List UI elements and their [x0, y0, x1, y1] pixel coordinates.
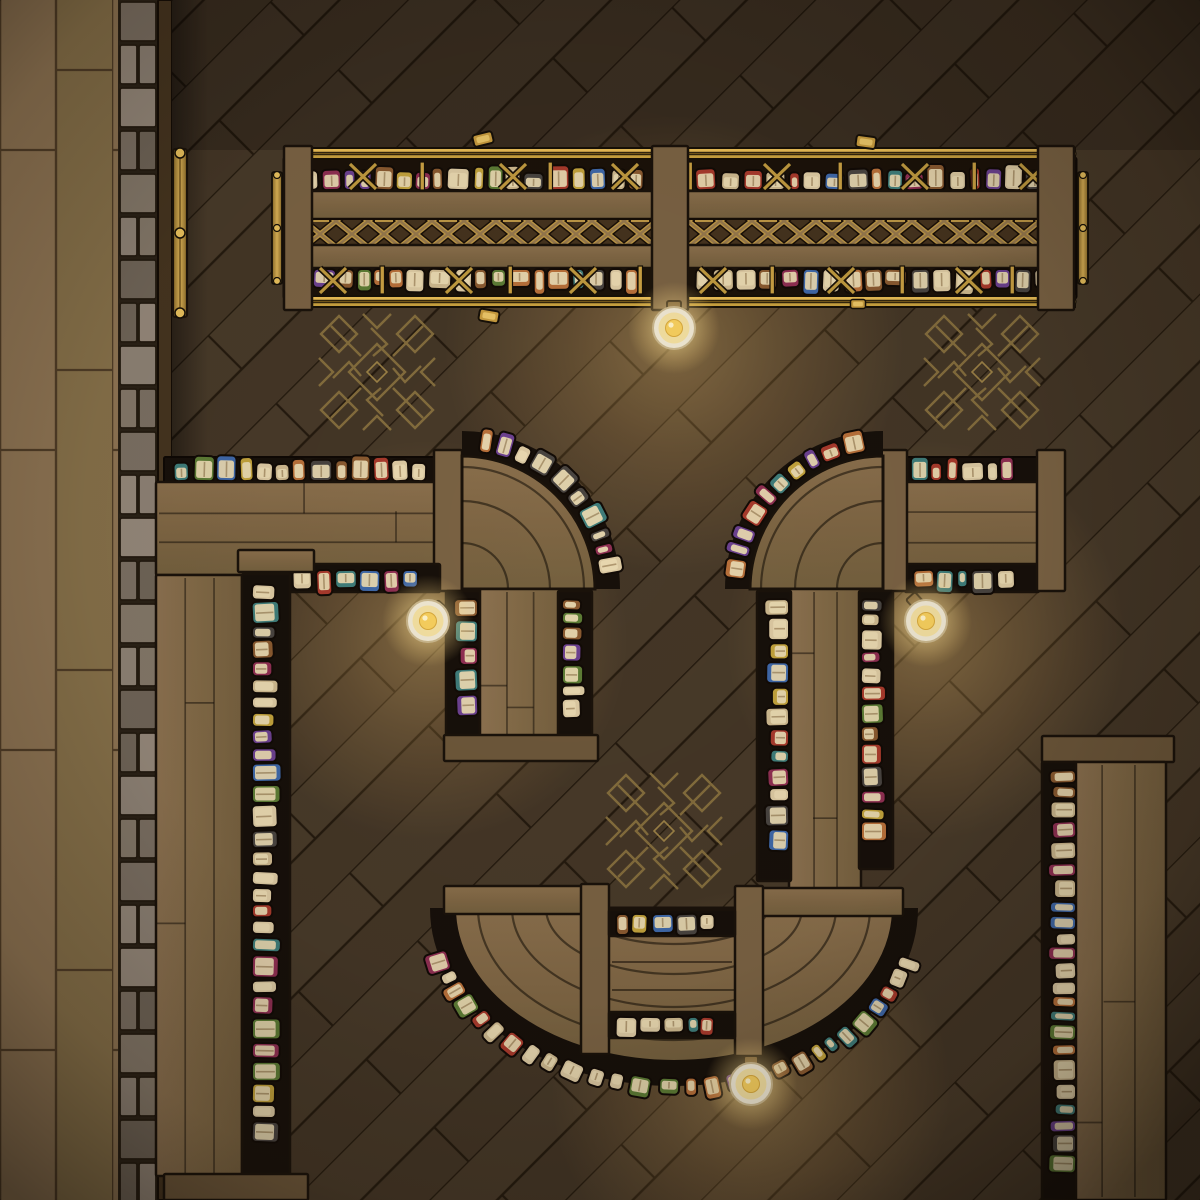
- book: [411, 463, 426, 482]
- book: [871, 167, 883, 190]
- book: [373, 457, 390, 482]
- desk-bar: [761, 888, 903, 916]
- book: [216, 455, 237, 481]
- book: [252, 729, 273, 744]
- book: [1049, 770, 1076, 784]
- candle: [855, 135, 876, 150]
- book: [252, 584, 276, 600]
- book: [1000, 457, 1014, 481]
- book: [478, 428, 494, 454]
- book: [1048, 947, 1076, 961]
- book: [769, 788, 789, 801]
- book: [456, 694, 478, 716]
- book: [1052, 996, 1076, 1008]
- book: [609, 269, 622, 291]
- battlemap-svg: [0, 0, 1200, 1200]
- book: [432, 168, 444, 191]
- book: [639, 1017, 661, 1033]
- book: [252, 830, 278, 848]
- book: [864, 269, 883, 293]
- book: [1054, 962, 1076, 980]
- book: [861, 726, 879, 742]
- book: [252, 921, 275, 935]
- book: [861, 744, 882, 765]
- book: [861, 667, 882, 684]
- book: [252, 1062, 281, 1081]
- book: [193, 456, 214, 482]
- book: [252, 937, 281, 952]
- book: [1050, 901, 1076, 913]
- book: [861, 822, 887, 842]
- book: [252, 661, 272, 676]
- shelf-post: [881, 450, 907, 591]
- book: [562, 599, 582, 611]
- book: [252, 639, 274, 659]
- book: [1054, 879, 1076, 898]
- book: [252, 763, 282, 782]
- book: [252, 980, 277, 993]
- hanging-lamp: [382, 575, 474, 667]
- book: [957, 570, 967, 587]
- book: [695, 168, 717, 191]
- book: [766, 662, 789, 683]
- book: [335, 460, 348, 481]
- wall-banner: [173, 148, 187, 318]
- book: [687, 1017, 699, 1033]
- book: [743, 170, 763, 190]
- book: [961, 462, 984, 482]
- book: [322, 169, 342, 190]
- book: [971, 570, 994, 594]
- book: [663, 1017, 684, 1033]
- book: [454, 668, 479, 692]
- book: [608, 1072, 625, 1091]
- shelf-cap: [164, 1174, 308, 1200]
- book: [736, 269, 757, 291]
- book: [847, 168, 870, 190]
- book: [252, 1043, 280, 1059]
- book: [252, 1105, 276, 1118]
- book: [932, 269, 951, 293]
- book: [252, 871, 279, 886]
- book: [861, 808, 885, 820]
- book: [1048, 1154, 1076, 1173]
- book: [616, 914, 629, 935]
- book: [685, 1077, 697, 1096]
- book: [1052, 821, 1077, 839]
- book: [589, 168, 606, 191]
- book: [699, 914, 714, 930]
- book: [252, 713, 275, 727]
- book: [252, 888, 272, 903]
- book: [359, 570, 381, 593]
- book: [861, 651, 881, 663]
- book: [173, 462, 189, 481]
- book: [861, 613, 880, 626]
- book: [861, 791, 886, 804]
- book: [562, 698, 581, 718]
- book: [572, 167, 586, 190]
- book: [1056, 1084, 1076, 1100]
- book: [861, 703, 884, 724]
- book: [251, 601, 280, 624]
- hanging-lamp: [880, 575, 972, 667]
- book: [675, 914, 698, 937]
- desk-post: [735, 886, 763, 1056]
- book: [802, 269, 819, 295]
- book: [252, 626, 276, 639]
- book: [781, 269, 800, 288]
- book: [534, 269, 546, 295]
- shelf-cap: [1042, 736, 1174, 762]
- book: [252, 804, 278, 828]
- book: [802, 171, 821, 190]
- book: [987, 462, 999, 481]
- book: [946, 457, 958, 481]
- book: [292, 459, 306, 481]
- hanging-lamp: [705, 1038, 797, 1130]
- book: [770, 729, 790, 747]
- book: [1054, 1103, 1076, 1115]
- book: [1014, 269, 1031, 294]
- bookshelf-left-column: [156, 575, 242, 1176]
- book: [768, 618, 789, 640]
- book: [1049, 1024, 1076, 1041]
- book: [405, 269, 425, 293]
- book: [316, 570, 333, 596]
- book: [911, 457, 929, 481]
- desk-bar: [444, 886, 586, 914]
- book: [1052, 982, 1076, 996]
- book: [474, 269, 487, 289]
- book: [770, 750, 789, 764]
- book: [446, 167, 469, 190]
- book: [562, 685, 586, 696]
- book: [861, 766, 884, 788]
- book: [1052, 1044, 1076, 1056]
- shelf-side-rail: [1078, 172, 1088, 285]
- book: [357, 269, 372, 291]
- stone-wall: [118, 0, 158, 1200]
- desk-post: [581, 884, 609, 1054]
- book: [1051, 801, 1076, 818]
- book: [1049, 1120, 1076, 1133]
- candle: [851, 300, 866, 309]
- book: [252, 785, 281, 803]
- book: [547, 269, 570, 290]
- book: [861, 686, 886, 702]
- book: [995, 269, 1011, 289]
- shelf-post: [284, 146, 312, 310]
- candle: [478, 308, 500, 323]
- book-row: [764, 599, 789, 851]
- book: [930, 463, 942, 481]
- book: [473, 167, 484, 191]
- book: [985, 168, 1002, 190]
- book: [335, 570, 357, 588]
- book: [1053, 1059, 1077, 1081]
- book: [765, 707, 789, 726]
- book: [631, 914, 648, 934]
- book: [841, 429, 867, 456]
- book: [252, 1121, 280, 1143]
- book: [949, 171, 966, 190]
- book: [491, 269, 506, 287]
- book: [1052, 1134, 1076, 1153]
- book: [252, 955, 279, 978]
- book: [721, 172, 740, 190]
- book: [764, 599, 789, 616]
- book: [252, 697, 278, 709]
- book: [391, 459, 409, 481]
- book: [1048, 863, 1076, 877]
- book: [699, 1017, 714, 1036]
- book: [1050, 1011, 1076, 1022]
- book: [765, 805, 790, 827]
- book: [861, 599, 883, 612]
- book: [627, 1074, 652, 1099]
- book: [770, 643, 789, 659]
- book: [275, 464, 290, 482]
- bookshelf-bottom-right: [1071, 762, 1166, 1200]
- book: [562, 665, 583, 684]
- book: [1056, 933, 1076, 946]
- book: [562, 643, 582, 661]
- book: [772, 688, 789, 706]
- book: [997, 570, 1015, 589]
- book: [252, 679, 279, 693]
- shelf-post: [1038, 146, 1074, 310]
- book: [396, 171, 414, 190]
- book: [1050, 841, 1076, 859]
- floor-light-planks: [0, 0, 120, 1200]
- book: [256, 462, 273, 481]
- book: [659, 1078, 680, 1095]
- book: [388, 269, 404, 289]
- book: [252, 1083, 275, 1103]
- bookshelf-right-arm: [905, 482, 1039, 575]
- book: [768, 829, 790, 851]
- book: [652, 914, 674, 934]
- book: [310, 460, 332, 481]
- book-row: [173, 455, 426, 481]
- book: [239, 457, 253, 481]
- book: [625, 269, 638, 295]
- shelf-side-rail: [272, 172, 282, 285]
- book: [252, 1018, 281, 1039]
- shelf-cap: [444, 735, 598, 761]
- book: [252, 904, 272, 917]
- book: [252, 748, 277, 762]
- shelf-post: [1037, 450, 1065, 591]
- book: [597, 555, 624, 575]
- shelf-header: [238, 550, 314, 572]
- book: [724, 558, 748, 580]
- book: [562, 626, 583, 640]
- book: [616, 1017, 638, 1038]
- book: [1052, 786, 1076, 799]
- book: [767, 768, 789, 788]
- book: [351, 455, 371, 481]
- book: [252, 996, 274, 1015]
- shelf-stub: [480, 589, 560, 737]
- book: [252, 851, 273, 866]
- hanging-lamp: [628, 282, 720, 374]
- book: [911, 269, 930, 294]
- bookshelf-right-column: [789, 589, 861, 910]
- library-battlemap-canvas: [0, 0, 1200, 1200]
- book: [861, 629, 883, 650]
- book: [562, 612, 584, 625]
- book: [1049, 916, 1076, 930]
